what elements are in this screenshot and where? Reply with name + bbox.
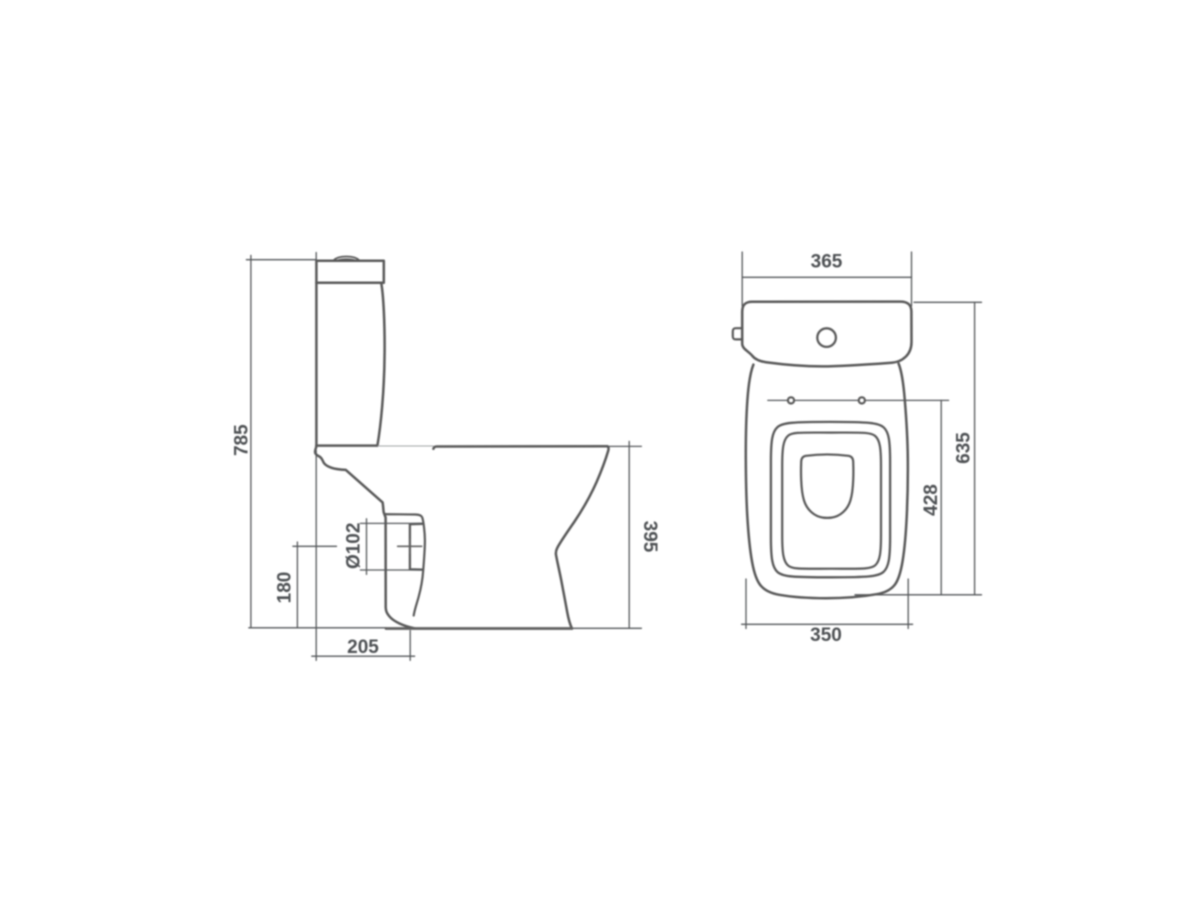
svg-text:635: 635 bbox=[954, 432, 975, 464]
svg-text:428: 428 bbox=[921, 484, 942, 516]
svg-text:205: 205 bbox=[347, 637, 379, 658]
svg-text:395: 395 bbox=[639, 521, 660, 553]
svg-text:365: 365 bbox=[811, 251, 843, 272]
svg-text:785: 785 bbox=[232, 424, 253, 456]
svg-text:180: 180 bbox=[274, 572, 295, 604]
svg-text:Ø102: Ø102 bbox=[343, 523, 364, 569]
svg-text:350: 350 bbox=[810, 625, 842, 646]
